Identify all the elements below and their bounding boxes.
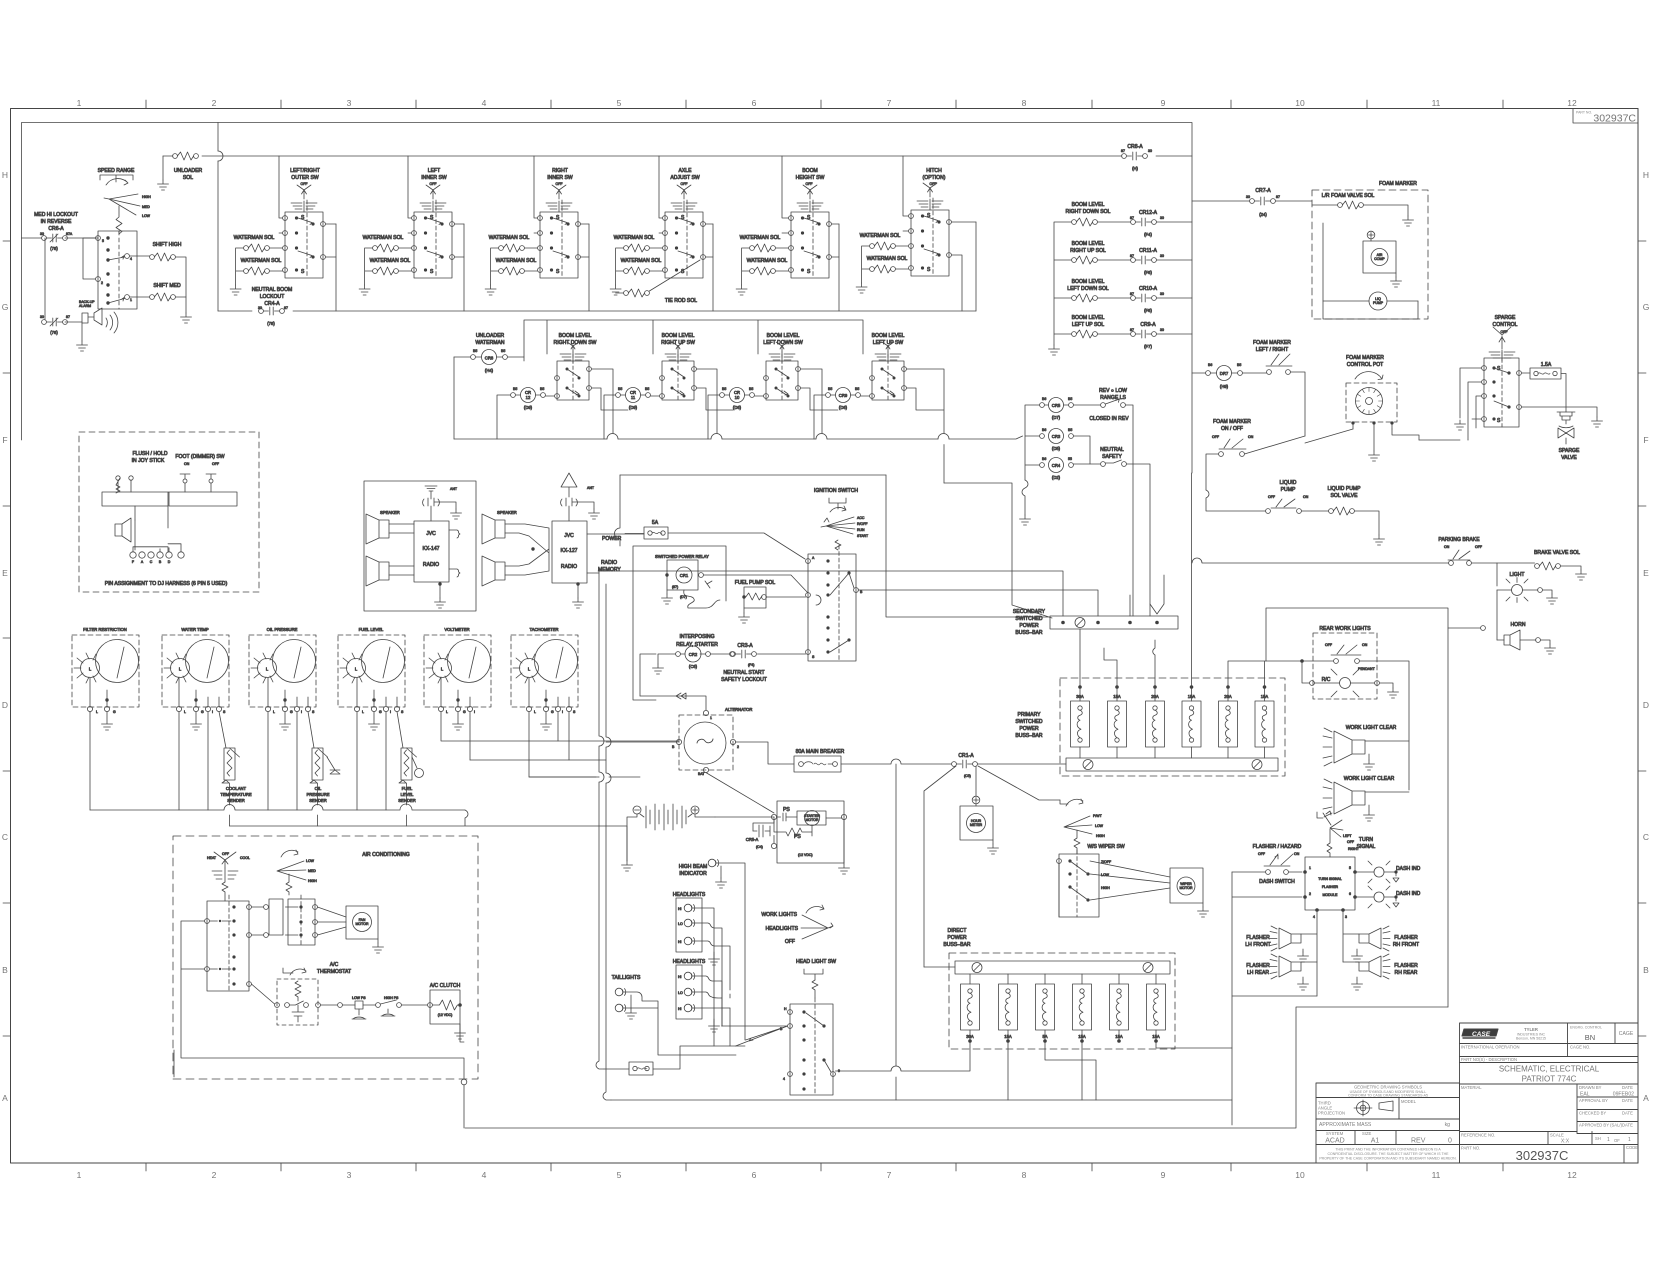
svg-text:4: 4 [783, 1077, 785, 1081]
svg-text:WATERMAN SOL: WATERMAN SOL [489, 235, 530, 241]
svg-text:OFF: OFF [1268, 495, 1275, 499]
svg-text:SPEAKER: SPEAKER [497, 510, 517, 515]
svg-text:DASH SWITCH: DASH SWITCH [1259, 879, 1295, 885]
svg-text:0: 0 [1448, 1138, 1452, 1145]
svg-text:WATERMAN SOL: WATERMAN SOL [234, 235, 275, 241]
svg-text:ALTERNATOR: ALTERNATOR [725, 707, 752, 712]
svg-text:D: D [2, 700, 8, 710]
svg-text:BUSS–BAR: BUSS–BAR [943, 942, 970, 948]
svg-text:DATE: DATE [1622, 1098, 1633, 1103]
svg-text:7: 7 [887, 1170, 892, 1180]
svg-text:(78): (78) [267, 321, 275, 326]
svg-text:RIGHT DOWN SOL: RIGHT DOWN SOL [1066, 209, 1111, 215]
svg-text:(F6): (F6) [1144, 270, 1152, 275]
svg-text:START: START [857, 534, 869, 538]
svg-text:BOOM LEVEL: BOOM LEVEL [872, 333, 905, 339]
svg-text:NEUTRAL BOOM: NEUTRAL BOOM [252, 287, 293, 293]
svg-text:1: 1 [710, 716, 712, 720]
svg-text:(F4): (F4) [748, 663, 754, 667]
svg-text:FOAM MARKER: FOAM MARKER [1213, 419, 1251, 425]
svg-text:LEFT/RIGHT: LEFT/RIGHT [290, 168, 320, 174]
svg-text:B: B [2, 965, 8, 975]
svg-text:(D2): (D2) [1052, 475, 1061, 480]
svg-text:B5: B5 [1068, 428, 1072, 432]
svg-text:THERMOSTAT: THERMOSTAT [317, 969, 351, 975]
svg-text:PIN ASSIGNMENT TO DJ HARNESS (: PIN ASSIGNMENT TO DJ HARNESS (6 PIN 5 US… [105, 581, 228, 587]
svg-text:FOAM MARKER: FOAM MARKER [1379, 181, 1417, 187]
svg-text:WORK LIGHT CLEAR: WORK LIGHT CLEAR [1344, 776, 1395, 782]
svg-text:RADIO: RADIO [561, 564, 577, 570]
svg-text:WATERMAN SOL: WATERMAN SOL [747, 258, 788, 264]
svg-text:INDICATOR: INDICATOR [679, 871, 707, 877]
svg-text:E: E [1643, 568, 1649, 578]
svg-text:WATER TEMP: WATER TEMP [181, 627, 209, 632]
svg-text:RADIO: RADIO [601, 560, 617, 566]
svg-text:(D6): (D6) [839, 405, 848, 410]
svg-text:80A MAIN BREAKER: 80A MAIN BREAKER [796, 749, 845, 755]
svg-text:ON: ON [1362, 643, 1368, 647]
svg-text:L: L [184, 710, 186, 714]
svg-text:OFF: OFF [1347, 840, 1354, 844]
svg-text:FLASHER / HAZARD: FLASHER / HAZARD [1253, 844, 1302, 850]
svg-text:HIGH: HIGH [308, 879, 317, 883]
svg-text:JVC: JVC [426, 531, 436, 537]
svg-text:MED HI LOCKOUT: MED HI LOCKOUT [34, 212, 78, 218]
svg-text:DR7: DR7 [1220, 371, 1229, 376]
svg-text:7: 7 [887, 98, 892, 108]
svg-text:UNLOADER: UNLOADER [476, 333, 505, 339]
svg-text:A: A [2, 1093, 8, 1103]
svg-text:B6: B6 [1042, 457, 1046, 461]
svg-text:OFF: OFF [681, 182, 688, 186]
svg-text:B5: B5 [501, 349, 505, 353]
svg-text:ON / OFF: ON / OFF [1221, 426, 1243, 432]
svg-text:DATE: DATE [1622, 1085, 1633, 1090]
svg-text:PENDANT: PENDANT [1358, 667, 1376, 671]
svg-text:HIGH: HIGH [1101, 886, 1110, 890]
svg-text:H: H [2, 170, 8, 180]
svg-text:SCALE: SCALE [1550, 1133, 1564, 1138]
svg-text:2: 2 [212, 98, 217, 108]
svg-text:OF: OF [1614, 1138, 1620, 1143]
svg-text:FLASHER: FLASHER [1322, 885, 1339, 889]
svg-text:F: F [1643, 435, 1648, 445]
svg-text:MATERIAL: MATERIAL [1461, 1085, 1482, 1090]
svg-text:WATERMAN SOL: WATERMAN SOL [621, 258, 662, 264]
svg-text:FOAM MARKER: FOAM MARKER [1346, 355, 1384, 361]
svg-text:LEFT UP SOL: LEFT UP SOL [1072, 322, 1105, 328]
svg-text:2: 2 [101, 281, 103, 285]
svg-text:B5: B5 [618, 387, 622, 391]
svg-text:FOOT (DIMMER) SW: FOOT (DIMMER) SW [175, 454, 224, 460]
svg-text:CR11-A: CR11-A [1139, 248, 1157, 254]
svg-text:1.5A: 1.5A [1541, 362, 1552, 368]
svg-text:OFF: OFF [1325, 643, 1332, 647]
svg-text:4: 4 [482, 98, 487, 108]
svg-text:CONTROL POT: CONTROL POT [1347, 362, 1384, 368]
svg-text:10: 10 [735, 395, 740, 400]
svg-text:ON: ON [1303, 495, 1309, 499]
svg-text:CHECKED BY: CHECKED BY [1579, 1111, 1606, 1116]
svg-text:RH FRONT: RH FRONT [1393, 942, 1419, 948]
svg-text:12: 12 [1567, 1170, 1577, 1180]
svg-text:B5: B5 [855, 387, 859, 391]
svg-text:CR1: CR1 [680, 573, 689, 578]
svg-text:30: 30 [1160, 254, 1164, 258]
svg-text:METER: METER [970, 823, 983, 827]
svg-text:WATERMAN: WATERMAN [475, 340, 504, 346]
svg-text:LO: LO [678, 922, 683, 926]
svg-text:ACAD: ACAD [1325, 1138, 1344, 1145]
svg-text:F: F [132, 560, 134, 564]
svg-text:MED: MED [308, 869, 316, 873]
svg-text:SYSTEM: SYSTEM [1326, 1131, 1344, 1136]
svg-text:R/OFF: R/OFF [857, 522, 868, 526]
svg-text:SOL: SOL [183, 175, 193, 181]
svg-text:OIL: OIL [315, 786, 322, 791]
svg-text:5: 5 [617, 1170, 622, 1180]
svg-text:87: 87 [284, 306, 288, 310]
svg-text:OFF: OFF [806, 182, 813, 186]
svg-text:LEFT UP SW: LEFT UP SW [873, 340, 904, 346]
svg-text:AXLE: AXLE [678, 168, 692, 174]
svg-text:30: 30 [1246, 195, 1250, 199]
svg-text:PART NO.: PART NO. [1461, 1146, 1480, 1151]
svg-text:4: 4 [482, 1170, 487, 1180]
svg-text:SHIFT HIGH: SHIFT HIGH [153, 242, 182, 248]
svg-text:APPROVAL BY: APPROVAL BY [1579, 1098, 1608, 1103]
svg-text:F: F [2, 435, 7, 445]
svg-text:G: G [551, 710, 554, 714]
svg-text:A1: A1 [1371, 1138, 1380, 1145]
svg-text:HEADLIGHTS: HEADLIGHTS [765, 926, 798, 932]
svg-text:A/C: A/C [330, 962, 339, 968]
svg-text:TAILLIGHTS: TAILLIGHTS [612, 975, 641, 981]
svg-text:OFF: OFF [222, 852, 229, 856]
svg-text:RADIO: RADIO [423, 562, 439, 568]
svg-text:CLOSED IN REV: CLOSED IN REV [1089, 416, 1129, 422]
svg-text:(C6): (C6) [689, 664, 698, 669]
svg-text:CR5: CR5 [1052, 403, 1061, 408]
svg-text:(D5): (D5) [1052, 446, 1061, 451]
svg-text:SAFETY: SAFETY [1102, 454, 1122, 460]
svg-text:FUEL PUMP SOL: FUEL PUMP SOL [735, 580, 776, 586]
svg-text:SENDER: SENDER [398, 798, 415, 803]
svg-text:LOCKOUT: LOCKOUT [260, 294, 285, 300]
svg-text:Benson, MN 56215: Benson, MN 56215 [1516, 1037, 1546, 1041]
svg-text:TACHOMETER: TACHOMETER [529, 627, 558, 632]
svg-text:RANGE LS: RANGE LS [1100, 395, 1126, 401]
svg-text:TEMPERATURE: TEMPERATURE [220, 792, 252, 797]
svg-text:OFF: OFF [1258, 852, 1265, 856]
svg-text:OFF: OFF [1475, 545, 1482, 549]
svg-text:8: 8 [1022, 1170, 1027, 1180]
svg-text:ACC: ACC [857, 516, 865, 520]
svg-text:FUEL: FUEL [402, 786, 413, 791]
svg-text:A/C CLUTCH: A/C CLUTCH [430, 983, 461, 989]
svg-text:REV ● LOW: REV ● LOW [1099, 388, 1127, 394]
svg-text:ON: ON [1294, 852, 1300, 856]
svg-text:HORN: HORN [1511, 622, 1526, 628]
svg-text:SHIFT MED: SHIFT MED [153, 283, 181, 289]
svg-text:WATERMAN SOL: WATERMAN SOL [860, 233, 901, 239]
svg-text:SPARGE: SPARGE [1559, 448, 1580, 454]
svg-text:WATERMAN SOL: WATERMAN SOL [614, 235, 655, 241]
svg-text:VALVE: VALVE [1561, 455, 1577, 461]
svg-text:kg: kg [1445, 1122, 1451, 1128]
svg-text:DIRECT: DIRECT [948, 928, 967, 934]
svg-text:HI: HI [678, 1007, 682, 1011]
svg-text:I: I [562, 710, 563, 714]
svg-text:L: L [446, 710, 448, 714]
svg-text:B6: B6 [1042, 428, 1046, 432]
svg-text:REFERENCE NO.: REFERENCE NO. [1461, 1133, 1495, 1138]
svg-text:PARKING BRAKE: PARKING BRAKE [1438, 537, 1480, 543]
svg-text:G: G [1643, 302, 1650, 312]
svg-text:30: 30 [1148, 149, 1152, 153]
svg-text:CR9-A: CR9-A [1140, 322, 1156, 328]
svg-text:MODEL: MODEL [1401, 1099, 1417, 1104]
svg-text:BOOM LEVEL: BOOM LEVEL [767, 333, 800, 339]
svg-text:REAR WORK LIGHTS: REAR WORK LIGHTS [1319, 626, 1371, 632]
svg-text:MED: MED [142, 205, 150, 209]
svg-text:EAL: EAL [1580, 1092, 1590, 1098]
svg-text:302937C: 302937C [1593, 113, 1636, 125]
svg-text:(C4): (C4) [756, 845, 763, 849]
svg-text:OUTER SW: OUTER SW [291, 175, 319, 181]
svg-text:BUSS–BAR: BUSS–BAR [1015, 630, 1042, 636]
svg-text:APPROVED BY (SAL/): APPROVED BY (SAL/) [1579, 1123, 1623, 1128]
svg-text:(H): (H) [1132, 166, 1138, 171]
svg-text:B5: B5 [1068, 397, 1072, 401]
svg-text:RH REAR: RH REAR [1395, 970, 1418, 976]
svg-text:FLUSH / HOLD: FLUSH / HOLD [132, 451, 167, 457]
svg-text:GEOMETRIC DRAWING SYMBOLS: GEOMETRIC DRAWING SYMBOLS [1354, 1085, 1422, 1090]
svg-text:PUMP: PUMP [1281, 487, 1296, 493]
svg-text:TYLER: TYLER [1524, 1027, 1538, 1032]
svg-text:PUMP: PUMP [1373, 301, 1384, 305]
svg-text:WATERMAN SOL: WATERMAN SOL [496, 258, 537, 264]
svg-text:E: E [2, 568, 8, 578]
svg-text:CR1-A: CR1-A [958, 753, 974, 759]
svg-text:MEMORY: MEMORY [598, 567, 621, 573]
svg-text:LIQUID PUMP: LIQUID PUMP [1327, 486, 1361, 492]
svg-text:LOW PS: LOW PS [352, 996, 366, 1000]
svg-text:HIGH BEAM: HIGH BEAM [679, 864, 708, 870]
svg-text:RIGHT DOWN SW: RIGHT DOWN SW [554, 340, 597, 346]
svg-text:OFF: OFF [785, 939, 795, 945]
svg-text:BUSS–BAR: BUSS–BAR [1015, 733, 1042, 739]
svg-text:G: G [201, 710, 204, 714]
svg-text:CR6-A: CR6-A [48, 226, 64, 232]
svg-text:DATE: DATE [1622, 1111, 1633, 1116]
svg-text:6: 6 [1349, 892, 1351, 896]
svg-text:11: 11 [631, 395, 636, 400]
svg-text:B6: B6 [1042, 397, 1046, 401]
svg-text:5: 5 [102, 239, 104, 243]
svg-text:DASH IND: DASH IND [1396, 866, 1421, 872]
svg-text:RIGHT UP SW: RIGHT UP SW [661, 340, 695, 346]
svg-text:DRAWN BY: DRAWN BY [1579, 1085, 1602, 1090]
svg-text:(D7): (D7) [680, 595, 687, 599]
svg-text:B5: B5 [828, 387, 832, 391]
svg-text:B5: B5 [513, 387, 517, 391]
svg-text:CR3-A: CR3-A [737, 643, 753, 649]
svg-text:L/R FOAM VALVE SOL: L/R FOAM VALVE SOL [1322, 193, 1375, 199]
svg-text:HEAT: HEAT [207, 856, 217, 860]
svg-text:1: 1 [1628, 1137, 1631, 1143]
svg-text:COOLANT: COOLANT [226, 786, 247, 791]
svg-text:1: 1 [77, 98, 82, 108]
svg-text:FLASHER: FLASHER [1246, 935, 1270, 941]
svg-text:SWITCHED: SWITCHED [1015, 616, 1042, 622]
svg-text:CR9: CR9 [839, 393, 848, 398]
svg-text:3: 3 [347, 1170, 352, 1180]
svg-text:COOL: COOL [240, 856, 250, 860]
svg-text:THIS PRINT AND THE INFORMATION: THIS PRINT AND THE INFORMATION CONTAINED… [1335, 1148, 1441, 1152]
svg-text:MOTOR: MOTOR [806, 818, 819, 822]
svg-text:30: 30 [40, 315, 44, 319]
svg-text:B5: B5 [645, 387, 649, 391]
svg-text:HI: HI [678, 940, 682, 944]
svg-text:OFF: OFF [556, 182, 563, 186]
svg-text:3: 3 [347, 98, 352, 108]
svg-text:4: 4 [130, 257, 132, 261]
svg-text:SWITCHED POWER RELAY: SWITCHED POWER RELAY [655, 554, 709, 559]
svg-text:NEUTRAL: NEUTRAL [1100, 447, 1124, 453]
svg-text:30: 30 [1160, 292, 1164, 296]
svg-text:CR4: CR4 [1052, 463, 1061, 468]
svg-text:ENGRG. CONTROL: ENGRG. CONTROL [1570, 1026, 1602, 1030]
svg-text:WATERMAN SOL: WATERMAN SOL [363, 235, 404, 241]
svg-text:MOTOR: MOTOR [356, 922, 369, 926]
svg-text:BOOM LEVEL: BOOM LEVEL [1072, 315, 1105, 321]
svg-text:87: 87 [1121, 149, 1125, 153]
svg-text:CR12-A: CR12-A [1139, 210, 1158, 216]
svg-text:INNER SW: INNER SW [421, 175, 447, 181]
svg-text:HEADLIGHTS: HEADLIGHTS [673, 959, 706, 965]
svg-text:302937C: 302937C [1516, 1148, 1569, 1163]
svg-text:PART NO(S) - DESCRIPTION: PART NO(S) - DESCRIPTION [1461, 1057, 1517, 1062]
svg-text:HIGH PS: HIGH PS [384, 996, 399, 1000]
svg-text:B5: B5 [1237, 363, 1241, 367]
svg-text:VOLTMETER: VOLTMETER [444, 627, 469, 632]
svg-text:B: B [1643, 965, 1649, 975]
svg-text:OFF: OFF [1212, 435, 1219, 439]
svg-text:G: G [463, 710, 466, 714]
svg-text:LIQUID: LIQUID [1280, 480, 1297, 486]
svg-text:INTERNATIONAL OPERATION: INTERNATIONAL OPERATION [1461, 1045, 1520, 1050]
svg-text:BRAKE VALVE SOL: BRAKE VALVE SOL [1534, 550, 1580, 556]
svg-text:CAGE: CAGE [1619, 1031, 1634, 1037]
svg-text:COMP: COMP [1374, 257, 1385, 261]
svg-text:5: 5 [617, 98, 622, 108]
svg-text:OFF: OFF [301, 182, 308, 186]
svg-text:IGNITION SWITCH: IGNITION SWITCH [814, 488, 858, 494]
svg-text:1: 1 [1607, 1137, 1610, 1143]
svg-text:(D7): (D7) [1052, 415, 1061, 420]
svg-text:D: D [1643, 700, 1649, 710]
svg-text:BOOM: BOOM [802, 168, 818, 174]
svg-text:(D9): (D9) [629, 405, 638, 410]
svg-text:(F6): (F6) [1144, 308, 1152, 313]
svg-text:ALARM: ALARM [79, 304, 91, 308]
svg-text:POWER: POWER [947, 935, 967, 941]
svg-text:3: 3 [1345, 915, 1347, 919]
svg-text:HEADLIGHTS: HEADLIGHTS [673, 892, 706, 898]
svg-text:HEAD LIGHT SW: HEAD LIGHT SW [796, 959, 836, 965]
svg-text:9: 9 [1161, 1170, 1166, 1180]
svg-text:SH: SH [1595, 1136, 1601, 1141]
svg-text:1: 1 [1309, 866, 1311, 870]
svg-text:G: G [113, 710, 116, 714]
svg-text:(87): (87) [672, 585, 678, 589]
svg-text:WORK LIGHT CLEAR: WORK LIGHT CLEAR [1346, 725, 1397, 731]
svg-text:AIR CONDITIONING: AIR CONDITIONING [362, 852, 410, 858]
svg-text:PS: PS [783, 807, 790, 813]
svg-text:SPEED RANGE: SPEED RANGE [98, 168, 135, 174]
svg-text:PATRIOT 774C: PATRIOT 774C [1522, 1075, 1577, 1084]
svg-text:FILTER RESTRICTION: FILTER RESTRICTION [83, 627, 127, 632]
svg-text:W/S WIPER SW: W/S WIPER SW [1087, 844, 1125, 850]
svg-text:1: 1 [77, 1170, 82, 1180]
svg-text:30: 30 [258, 306, 262, 310]
svg-text:SPEAKER: SPEAKER [380, 510, 400, 515]
svg-text:(D9): (D9) [524, 405, 533, 410]
svg-text:CR5-A: CR5-A [746, 837, 759, 842]
svg-text:B6: B6 [1208, 363, 1212, 367]
svg-text:11: 11 [1432, 98, 1441, 108]
svg-text:CAGE NO.: CAGE NO. [1570, 1045, 1590, 1050]
svg-text:LOW: LOW [1095, 824, 1104, 828]
svg-text:(H9): (H9) [1220, 384, 1229, 389]
svg-text:ON: ON [1444, 545, 1450, 549]
svg-text:DATE: DATE [1622, 1123, 1633, 1128]
svg-text:ON: ON [184, 462, 190, 466]
svg-text:I: I [390, 710, 391, 714]
svg-text:LOW: LOW [142, 214, 151, 218]
svg-text:2: 2 [1309, 892, 1311, 896]
svg-text:CR4-A: CR4-A [264, 301, 280, 307]
svg-text:11: 11 [1432, 1170, 1441, 1180]
svg-text:FOAM MARKER: FOAM MARKER [1253, 340, 1291, 346]
svg-text:CR8-A: CR8-A [1127, 144, 1143, 150]
svg-text:30: 30 [1160, 328, 1164, 332]
svg-text:LOW: LOW [306, 859, 315, 863]
svg-text:CR10-A: CR10-A [1139, 286, 1158, 292]
svg-text:PART NO.: PART NO. [1576, 111, 1592, 115]
svg-text:SIZE: SIZE [1362, 1131, 1372, 1136]
svg-text:HIGH: HIGH [142, 195, 151, 199]
svg-text:2: 2 [737, 745, 739, 749]
svg-text:(C5): (C5) [964, 774, 971, 778]
svg-text:12: 12 [1567, 98, 1577, 108]
svg-text:4: 4 [1313, 915, 1315, 919]
svg-text:FLASHER: FLASHER [1246, 963, 1270, 969]
svg-text:G: G [290, 710, 293, 714]
svg-text:HIGH: HIGH [1096, 834, 1105, 838]
svg-text:INNER SW: INNER SW [547, 175, 573, 181]
svg-text:(12 VDC): (12 VDC) [798, 853, 813, 857]
svg-text:BN: BN [1585, 1033, 1595, 1042]
svg-text:SENDER: SENDER [309, 798, 326, 803]
svg-text:BOOM LEVEL: BOOM LEVEL [1072, 202, 1105, 208]
svg-text:(D6): (D6) [733, 405, 742, 410]
svg-text:RIGHT: RIGHT [1348, 847, 1360, 851]
svg-text:FLASHER: FLASHER [1394, 963, 1418, 969]
svg-text:PROJECTION: PROJECTION [1318, 1111, 1345, 1116]
svg-text:CODE: CODE [1626, 1145, 1638, 1150]
